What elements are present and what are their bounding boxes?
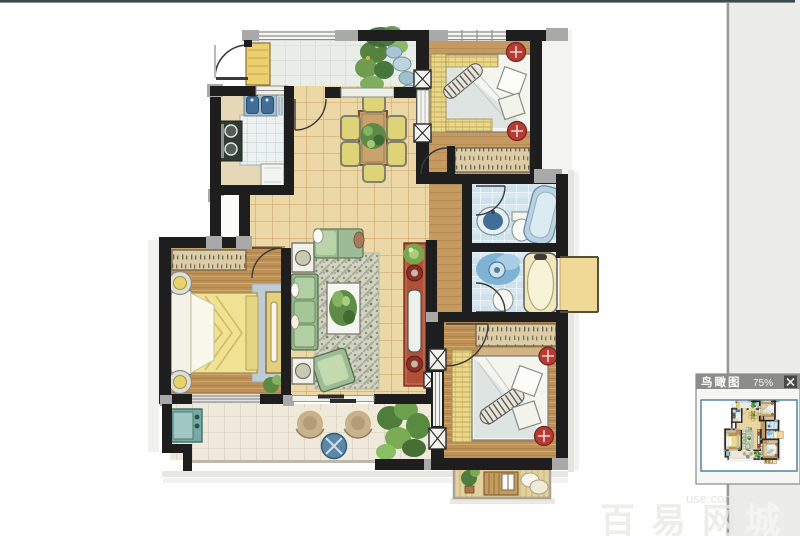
svg-text:75%: 75% [753,378,773,389]
svg-text:鸟瞰图: 鸟瞰图 [701,375,742,389]
svg-text:百易网: 百易网 [600,502,753,536]
svg-text:城: 城 [745,502,780,536]
